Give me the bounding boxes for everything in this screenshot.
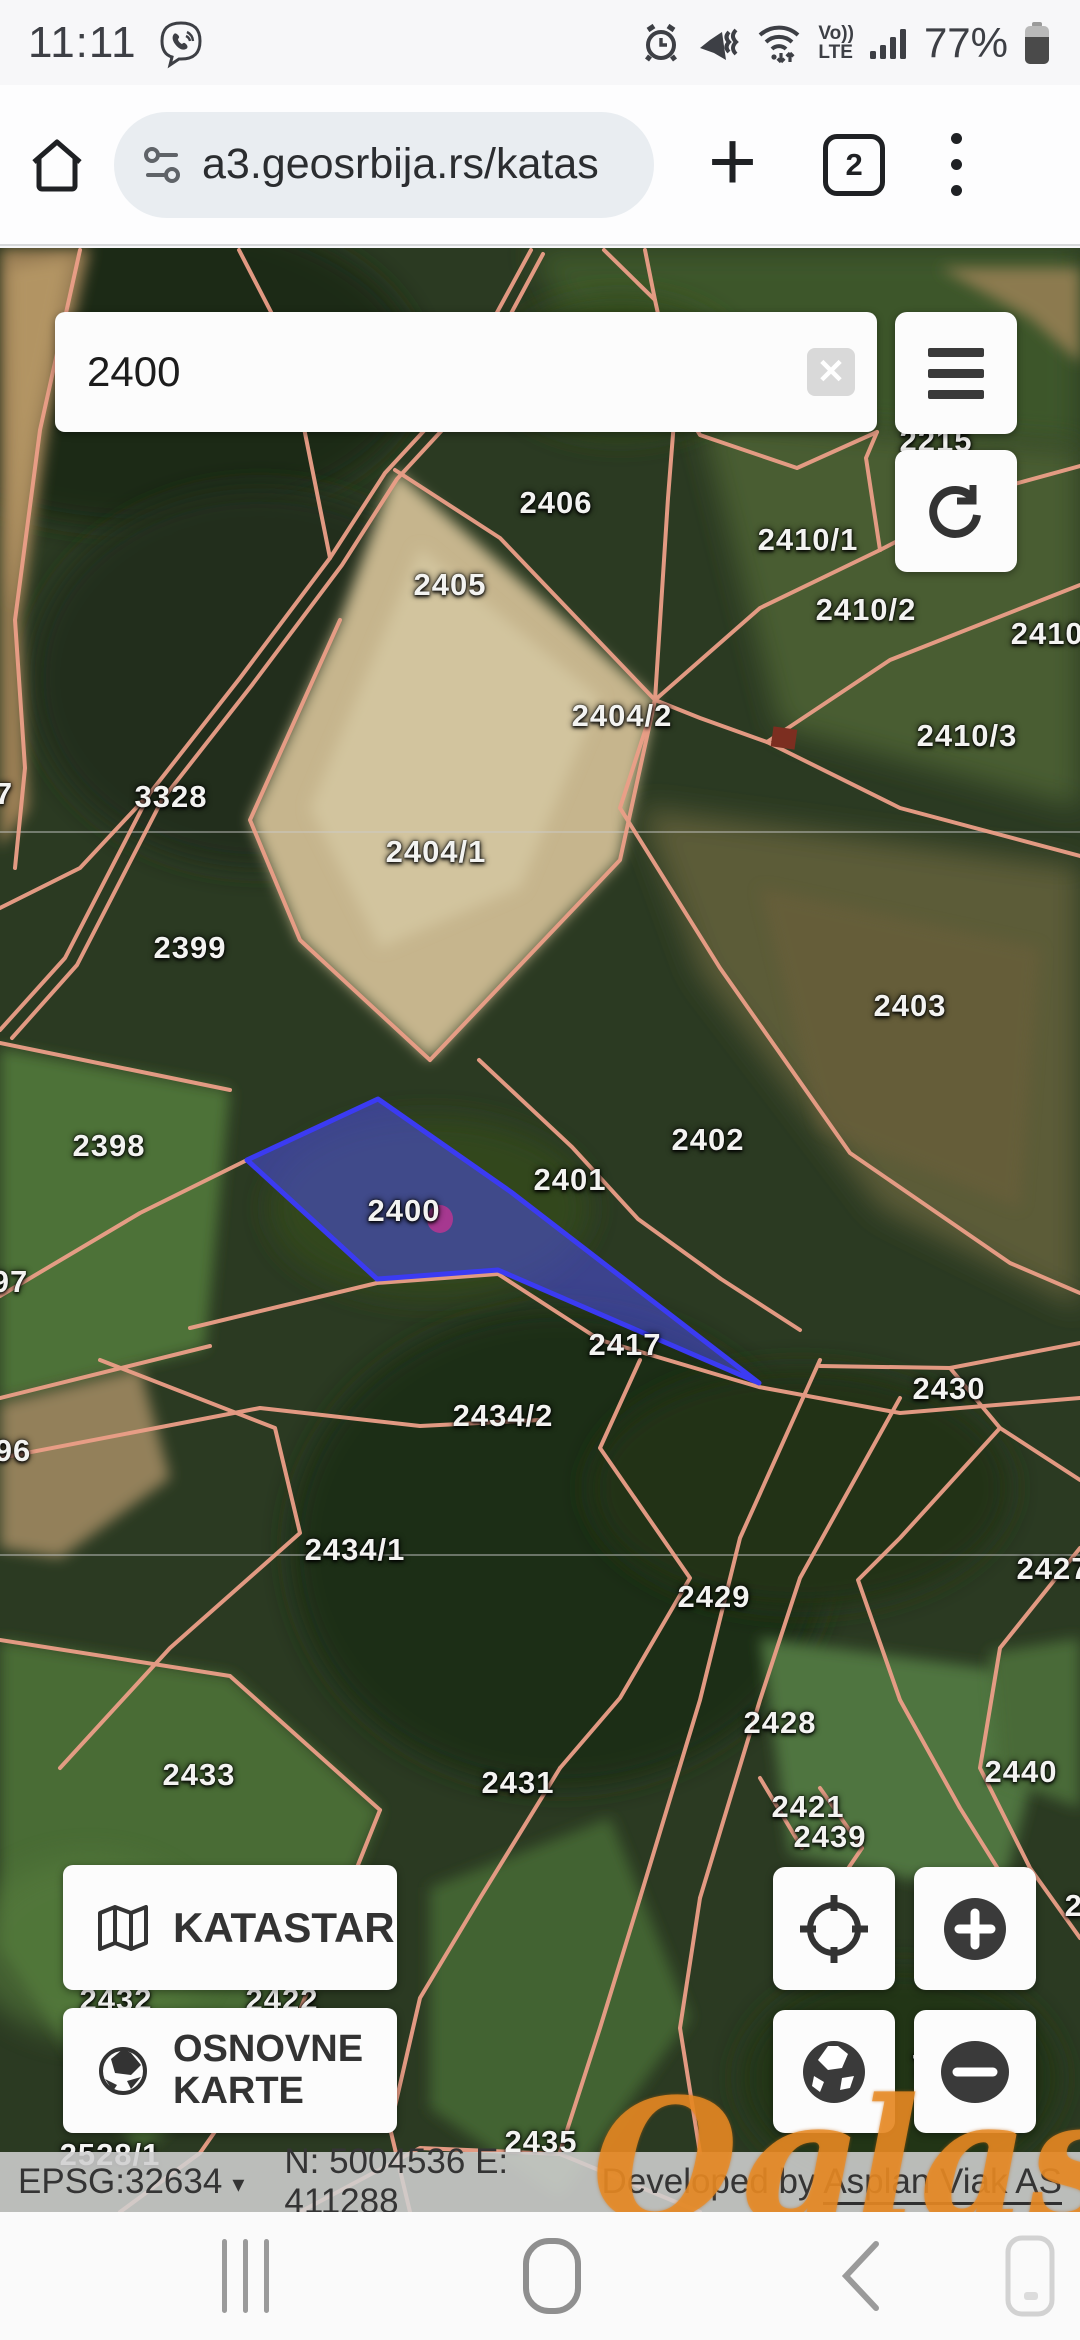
parcel-label-2402: 2402 xyxy=(672,1122,745,1158)
search-input[interactable] xyxy=(55,348,777,396)
coordinate-status-bar: EPSG:32634 ▾ N: 5004536 E: 411288 Develo… xyxy=(0,2152,1080,2212)
zoom-in-button[interactable] xyxy=(914,1867,1036,1990)
site-settings-icon[interactable] xyxy=(140,143,184,187)
parcel-label-2404-1: 2404/1 xyxy=(386,834,487,870)
map-canvas[interactable]: 221524062410/124052410/22410/2404/22410/… xyxy=(0,248,1080,2212)
parcel-label-2434-2: 2434/2 xyxy=(453,1398,554,1434)
parcel-label-2430: 2430 xyxy=(913,1371,986,1407)
parcel-label-2417: 2417 xyxy=(589,1327,662,1363)
battery-percent-text: 77% xyxy=(924,19,1008,67)
basemap-globe-icon xyxy=(97,2045,149,2097)
parcel-label-2404-2: 2404/2 xyxy=(572,698,673,734)
android-navigation-bar xyxy=(0,2212,1080,2340)
browser-menu-button[interactable] xyxy=(951,133,962,196)
zoom-out-button[interactable] xyxy=(914,2010,1036,2133)
parcel-label-2410-: 2410/ xyxy=(1011,616,1080,652)
refresh-button[interactable] xyxy=(895,450,1017,572)
parcel-label-97: 97 xyxy=(0,1264,28,1300)
epsg-code: EPSG:32634 xyxy=(18,2162,222,2202)
wifi-data-icon xyxy=(754,21,804,65)
developer-link[interactable]: Asplan Viak AS xyxy=(823,2162,1062,2205)
parcel-label-2410-1: 2410/1 xyxy=(758,522,859,558)
refresh-icon xyxy=(924,479,988,543)
parcel-label-2428: 2428 xyxy=(744,1705,817,1741)
parcel-label-2431: 2431 xyxy=(482,1765,555,1801)
parcel-label-2401: 2401 xyxy=(534,1162,607,1198)
tab-switcher-button[interactable]: 2 xyxy=(823,134,885,196)
parcel-label-2429: 2429 xyxy=(678,1579,751,1615)
signal-strength-icon xyxy=(868,23,910,63)
parcel-label-2440: 2440 xyxy=(985,1754,1058,1790)
caret-down-icon: ▾ xyxy=(232,2170,244,2199)
clear-search-button[interactable]: ✕ xyxy=(807,348,855,396)
locate-me-button[interactable] xyxy=(773,1867,895,1990)
parcel-label-244: 244 xyxy=(1065,1888,1080,1924)
sound-muted-icon xyxy=(696,22,740,64)
katastar-label: KATASTAR xyxy=(173,1904,395,1952)
parcel-label-2400: 2400 xyxy=(368,1193,441,1229)
parcel-label-2410-2: 2410/2 xyxy=(816,592,917,628)
parcel-label-2439: 2439 xyxy=(794,1819,867,1855)
minus-circle-icon xyxy=(937,2037,1013,2107)
viber-notification-icon xyxy=(155,17,207,69)
globe-view-button[interactable] xyxy=(773,2010,895,2133)
osnovne-karte-label: OSNOVNE KARTE xyxy=(173,2029,363,2111)
parcel-label-2406: 2406 xyxy=(520,485,593,521)
crosshair-icon xyxy=(796,1891,872,1967)
phone-screen: 11:11 xyxy=(0,0,1080,2340)
osnovne-karte-layer-button[interactable]: OSNOVNE KARTE xyxy=(63,2008,397,2133)
parcel-label-2427: 2427 xyxy=(1017,1551,1080,1587)
map-fold-icon xyxy=(97,1905,149,1951)
parcel-label-7: 7 xyxy=(0,776,13,812)
cursor-coordinates: N: 5004536 E: 411288 xyxy=(284,2142,601,2212)
android-home-button[interactable] xyxy=(512,2212,592,2340)
url-text[interactable]: a3.geosrbija.rs/katas xyxy=(202,140,599,189)
status-right-icons: Vo)) LTE 77% xyxy=(640,19,1052,67)
recents-button[interactable] xyxy=(205,2212,285,2340)
tab-count: 2 xyxy=(845,147,862,183)
parcel-label-2433: 2433 xyxy=(163,1757,236,1793)
back-button[interactable] xyxy=(820,2212,900,2340)
globe-icon xyxy=(798,2036,870,2108)
hamburger-icon xyxy=(928,348,984,399)
developer-credit: Developed by Asplan Viak AS xyxy=(601,2162,1062,2202)
parcel-label-96: 96 xyxy=(0,1433,31,1469)
parcel-label-2434-1: 2434/1 xyxy=(305,1532,406,1568)
url-bar[interactable]: a3.geosrbija.rs/katas xyxy=(114,112,654,218)
parcel-label-2403: 2403 xyxy=(874,988,947,1024)
parcel-label-2399: 2399 xyxy=(154,930,227,966)
parcel-search-box[interactable]: ✕ xyxy=(55,312,877,432)
alarm-icon xyxy=(640,22,682,64)
new-tab-button[interactable]: + xyxy=(708,119,757,203)
parcel-label-2398: 2398 xyxy=(73,1128,146,1164)
parcel-label-2410-3: 2410/3 xyxy=(917,718,1018,754)
parcel-label-2405: 2405 xyxy=(414,567,487,603)
parcel-label-3328: 3328 xyxy=(135,779,208,815)
volte-indicator: Vo)) LTE xyxy=(818,24,854,62)
side-panel-handle-icon[interactable] xyxy=(990,2212,1070,2340)
battery-icon xyxy=(1022,21,1052,65)
home-button[interactable] xyxy=(26,134,88,196)
plus-circle-icon xyxy=(939,1893,1011,1965)
clock-text: 11:11 xyxy=(28,18,137,68)
chevron-left-icon xyxy=(838,2238,882,2314)
katastar-layer-button[interactable]: KATASTAR xyxy=(63,1865,397,1990)
status-bar: 11:11 xyxy=(0,0,1080,85)
browser-toolbar: a3.geosrbija.rs/katas + 2 xyxy=(0,85,1080,246)
projection-selector[interactable]: EPSG:32634 ▾ xyxy=(18,2162,244,2202)
map-menu-button[interactable] xyxy=(895,312,1017,434)
